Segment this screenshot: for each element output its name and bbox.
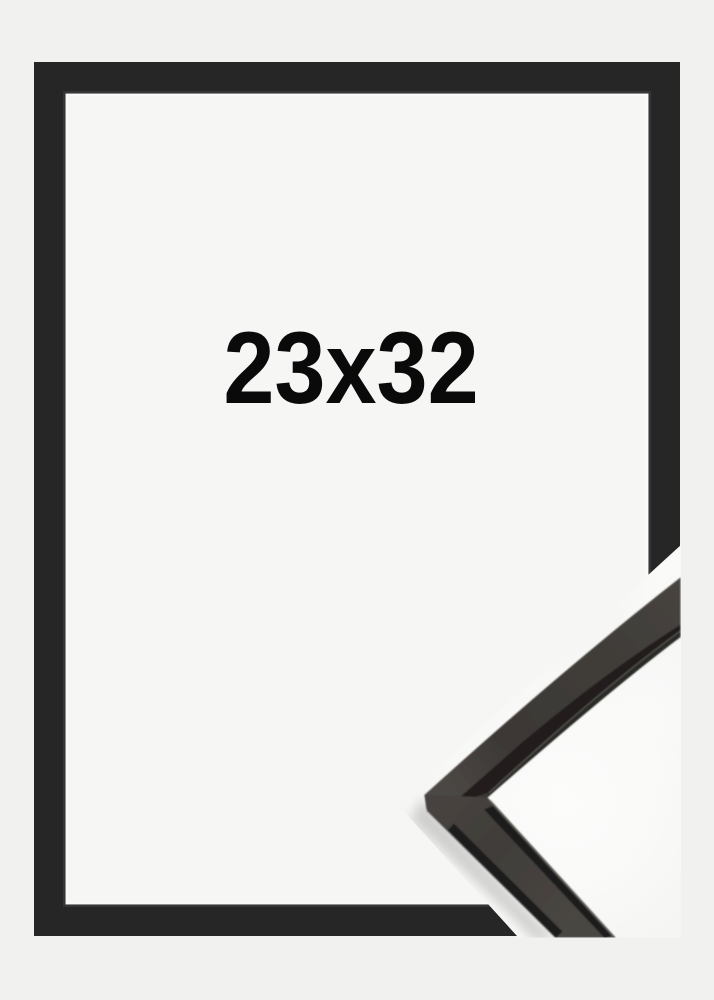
svg-text:23x32: 23x32 — [223, 310, 478, 425]
